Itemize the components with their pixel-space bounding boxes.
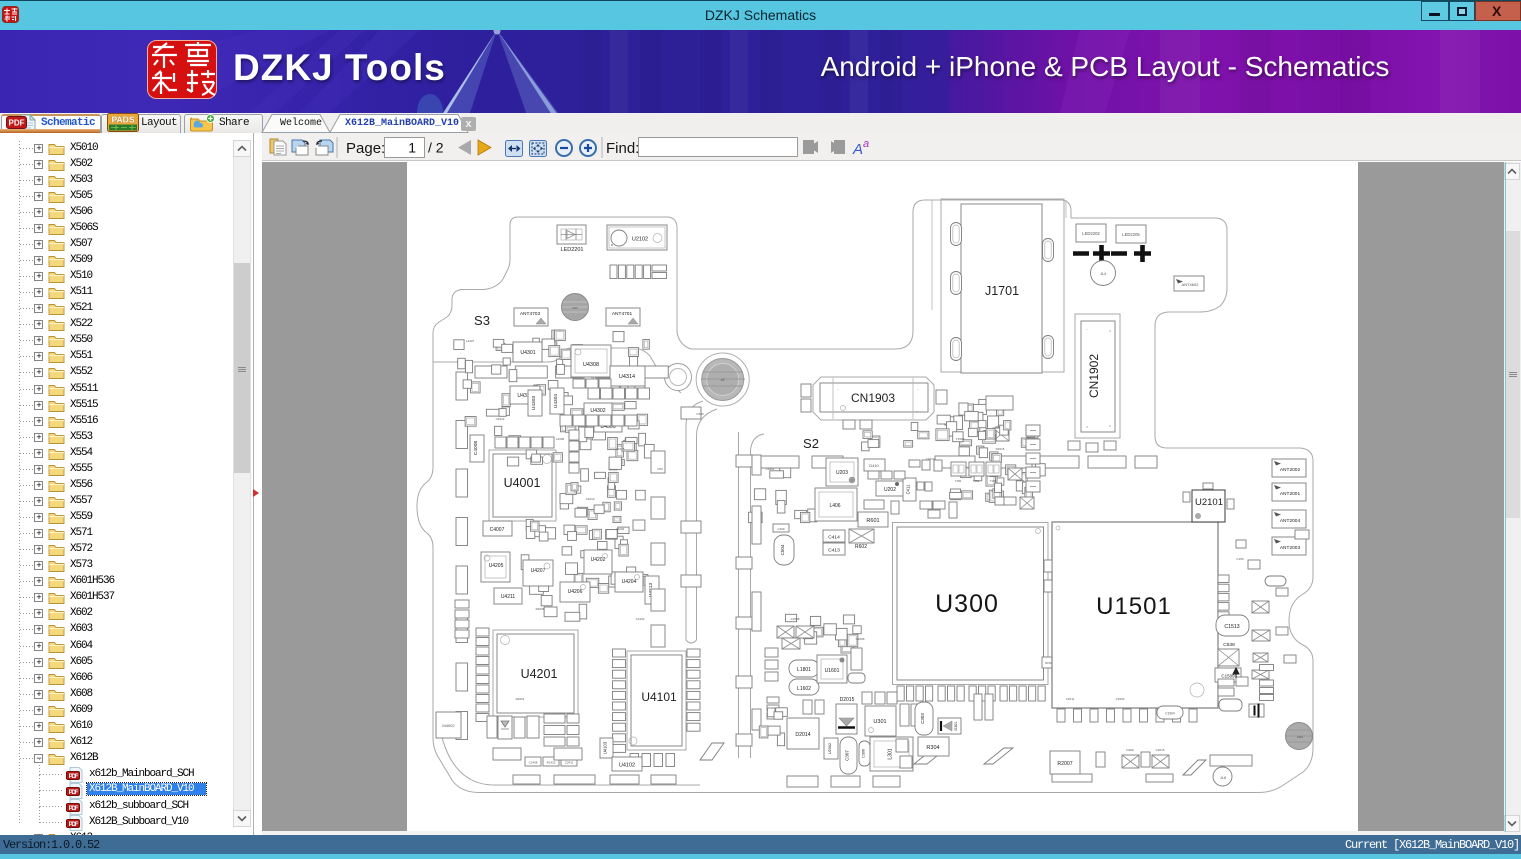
- svg-text:R4201: R4201: [516, 697, 525, 701]
- svg-text:U4103: U4103: [603, 741, 608, 754]
- svg-text:C4008: C4008: [473, 441, 479, 455]
- svg-text:C414: C414: [828, 535, 840, 541]
- svg-text:U4308: U4308: [583, 362, 599, 368]
- svg-text:C504: C504: [780, 544, 785, 555]
- svg-text:C1502: C1502: [1116, 697, 1125, 701]
- svg-text:L406: L406: [829, 503, 840, 509]
- svg-text:R602: R602: [855, 544, 867, 550]
- svg-text:PDF: PDF: [69, 822, 79, 828]
- svg-text:C1511: C1511: [1066, 697, 1075, 701]
- svg-text:U4204: U4204: [622, 579, 637, 585]
- svg-text:C1901: C1901: [766, 467, 775, 471]
- svg-text:C1904: C1904: [1165, 712, 1175, 716]
- svg-text:C2015: C2015: [1156, 748, 1165, 752]
- svg-text:C413: C413: [828, 548, 840, 554]
- svg-text:L1801: L1801: [797, 667, 811, 673]
- svg-text:C411: C411: [906, 484, 911, 494]
- svg-text:R601: R601: [866, 518, 879, 524]
- svg-text:L301: L301: [888, 748, 894, 759]
- svg-text:U4302: U4302: [590, 408, 605, 414]
- svg-text:R2007: R2007: [1057, 761, 1072, 767]
- svg-text:PDF: PDF: [69, 790, 79, 796]
- svg-text:M4002: M4002: [442, 723, 455, 728]
- svg-text:U2002: U2002: [828, 743, 832, 754]
- svg-text:D410: D410: [869, 463, 879, 468]
- svg-text:1: 1: [408, 140, 416, 156]
- svg-text:L1602: L1602: [797, 686, 811, 692]
- svg-text:R1432: R1432: [547, 761, 556, 765]
- svg-text:C2098: C2098: [791, 617, 800, 621]
- svg-text:T150: T150: [990, 479, 997, 483]
- svg-text:U4206: U4206: [568, 589, 583, 595]
- svg-text:C303: C303: [920, 713, 925, 724]
- svg-text:PADS: PADS: [112, 115, 135, 125]
- svg-text:Find:: Find:: [606, 140, 639, 157]
- svg-text:C1608: C1608: [856, 637, 865, 641]
- svg-text:D2014: D2014: [795, 732, 810, 738]
- svg-text:R4208: R4208: [536, 607, 545, 611]
- svg-text:L4203: L4203: [616, 527, 625, 531]
- svg-text:R1515: R1515: [996, 447, 1005, 451]
- svg-text:D301: D301: [954, 721, 958, 730]
- svg-text:C538: C538: [1223, 642, 1235, 648]
- svg-text:PDF: PDF: [9, 119, 25, 128]
- svg-text:D206: D206: [1126, 748, 1134, 752]
- svg-text:U4211: U4211: [501, 594, 516, 600]
- svg-text:U1601: U1601: [825, 668, 840, 674]
- svg-text:C4315: C4315: [616, 447, 625, 451]
- svg-text:T1503: T1503: [956, 437, 965, 441]
- svg-text:T150: T150: [973, 479, 980, 483]
- svg-text:C4312: C4312: [496, 417, 505, 421]
- svg-text:U301: U301: [873, 719, 886, 725]
- svg-text:U4205: U4205: [489, 563, 504, 569]
- svg-text:C1513: C1513: [1224, 624, 1239, 630]
- svg-text:U203: U203: [836, 470, 848, 476]
- svg-text:/ 2: / 2: [428, 140, 444, 156]
- svg-text:U4207: U4207: [531, 568, 546, 574]
- svg-text:U202: U202: [884, 487, 896, 493]
- svg-text:C50: C50: [657, 467, 663, 471]
- svg-text:C4210: C4210: [586, 497, 595, 501]
- svg-text:U4303: U4303: [531, 396, 537, 410]
- svg-text:C307: C307: [845, 750, 850, 761]
- svg-text:D2015: D2015: [840, 697, 855, 703]
- svg-text:PDF: PDF: [69, 806, 79, 812]
- svg-text:C4007: C4007: [490, 527, 505, 533]
- svg-text:R304: R304: [926, 745, 939, 751]
- svg-text:L4306: L4306: [556, 437, 565, 441]
- svg-text:C306: C306: [862, 749, 866, 758]
- svg-text:A: A: [852, 141, 863, 158]
- svg-text:U4304: U4304: [553, 394, 559, 408]
- svg-text:C4102: C4102: [636, 617, 645, 621]
- svg-text:C503: C503: [696, 412, 704, 416]
- svg-text:C2411: C2411: [565, 761, 574, 765]
- svg-text:U4301: U4301: [520, 350, 535, 356]
- svg-text:a: a: [863, 138, 869, 150]
- svg-text:C409: C409: [777, 527, 785, 531]
- svg-text:U4102: U4102: [619, 763, 635, 769]
- svg-text:T150: T150: [955, 479, 962, 483]
- svg-text:PDF: PDF: [69, 774, 79, 780]
- svg-text:C1910: C1910: [926, 457, 935, 461]
- svg-text:L4307: L4307: [466, 339, 475, 343]
- svg-text:C1498: C1498: [529, 761, 538, 765]
- svg-text:Page:: Page:: [346, 140, 385, 157]
- svg-text:U4314: U4314: [619, 374, 635, 380]
- svg-text:C150: C150: [1236, 557, 1244, 561]
